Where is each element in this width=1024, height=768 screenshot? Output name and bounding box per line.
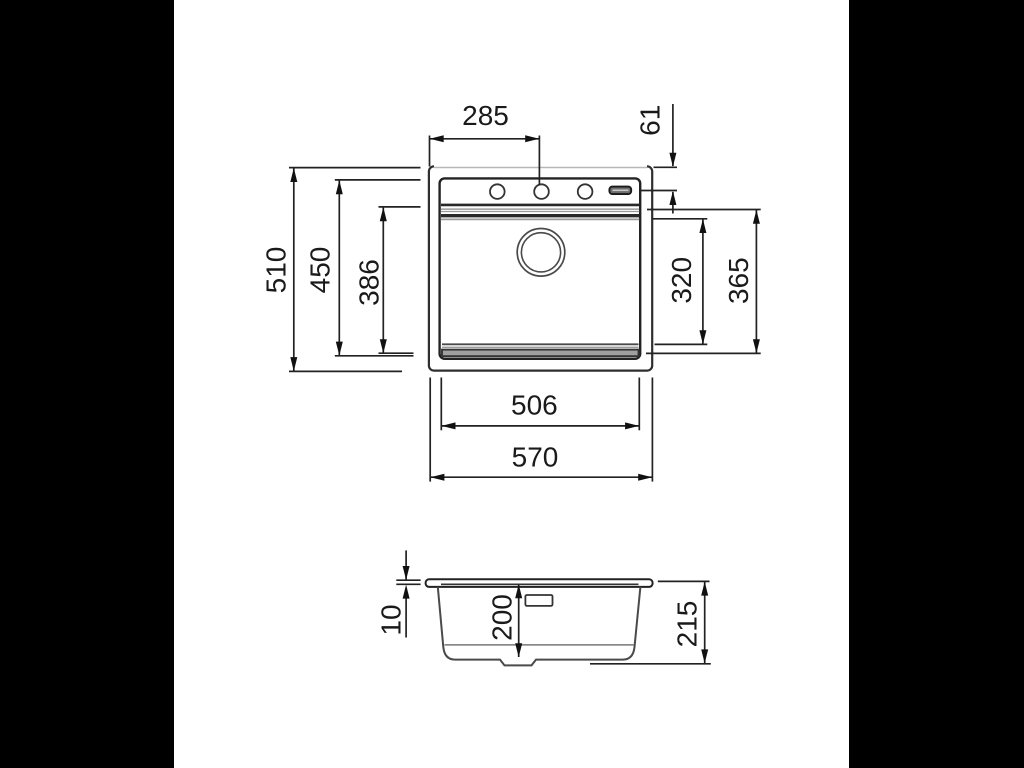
svg-text:215: 215 xyxy=(672,601,703,648)
svg-text:320: 320 xyxy=(666,257,697,304)
svg-text:285: 285 xyxy=(462,100,509,131)
svg-text:365: 365 xyxy=(723,257,754,304)
svg-text:450: 450 xyxy=(305,247,336,294)
svg-text:10: 10 xyxy=(375,604,406,635)
svg-text:200: 200 xyxy=(487,594,518,641)
svg-text:386: 386 xyxy=(354,259,385,306)
svg-text:510: 510 xyxy=(260,247,291,294)
svg-text:570: 570 xyxy=(512,442,559,473)
svg-text:61: 61 xyxy=(635,105,666,136)
svg-text:506: 506 xyxy=(511,390,558,421)
